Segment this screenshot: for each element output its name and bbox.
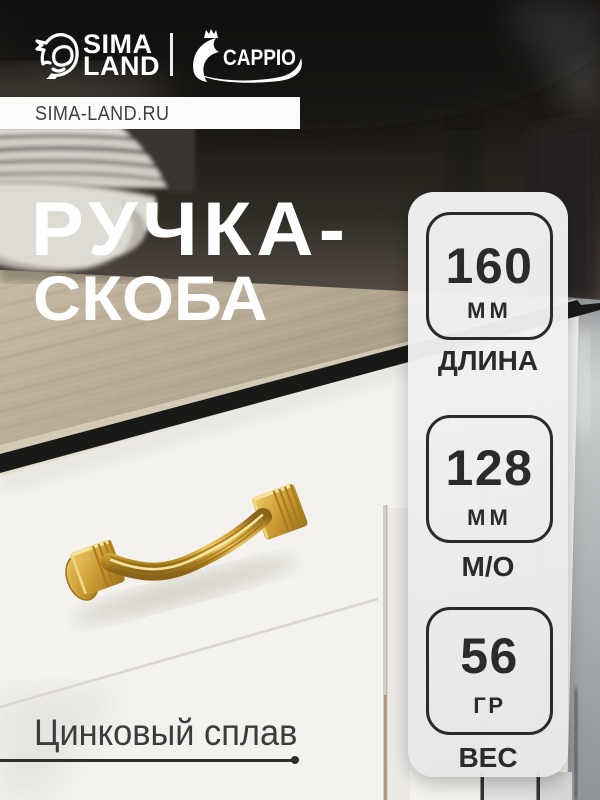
svg-text:CAPPIO: CAPPIO (223, 45, 296, 70)
